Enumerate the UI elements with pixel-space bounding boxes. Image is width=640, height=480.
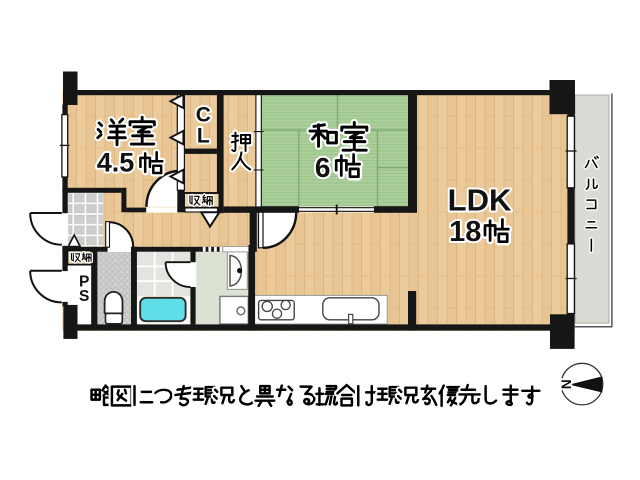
- svg-text:L: L: [197, 124, 210, 147]
- svg-text:C: C: [196, 103, 211, 126]
- svg-text:4.5: 4.5: [97, 148, 135, 178]
- svg-text:18: 18: [449, 216, 481, 248]
- svg-text:6: 6: [315, 152, 331, 183]
- svg-text:S: S: [79, 288, 89, 305]
- svg-text:LDK: LDK: [448, 183, 512, 218]
- svg-text:N: N: [559, 379, 574, 389]
